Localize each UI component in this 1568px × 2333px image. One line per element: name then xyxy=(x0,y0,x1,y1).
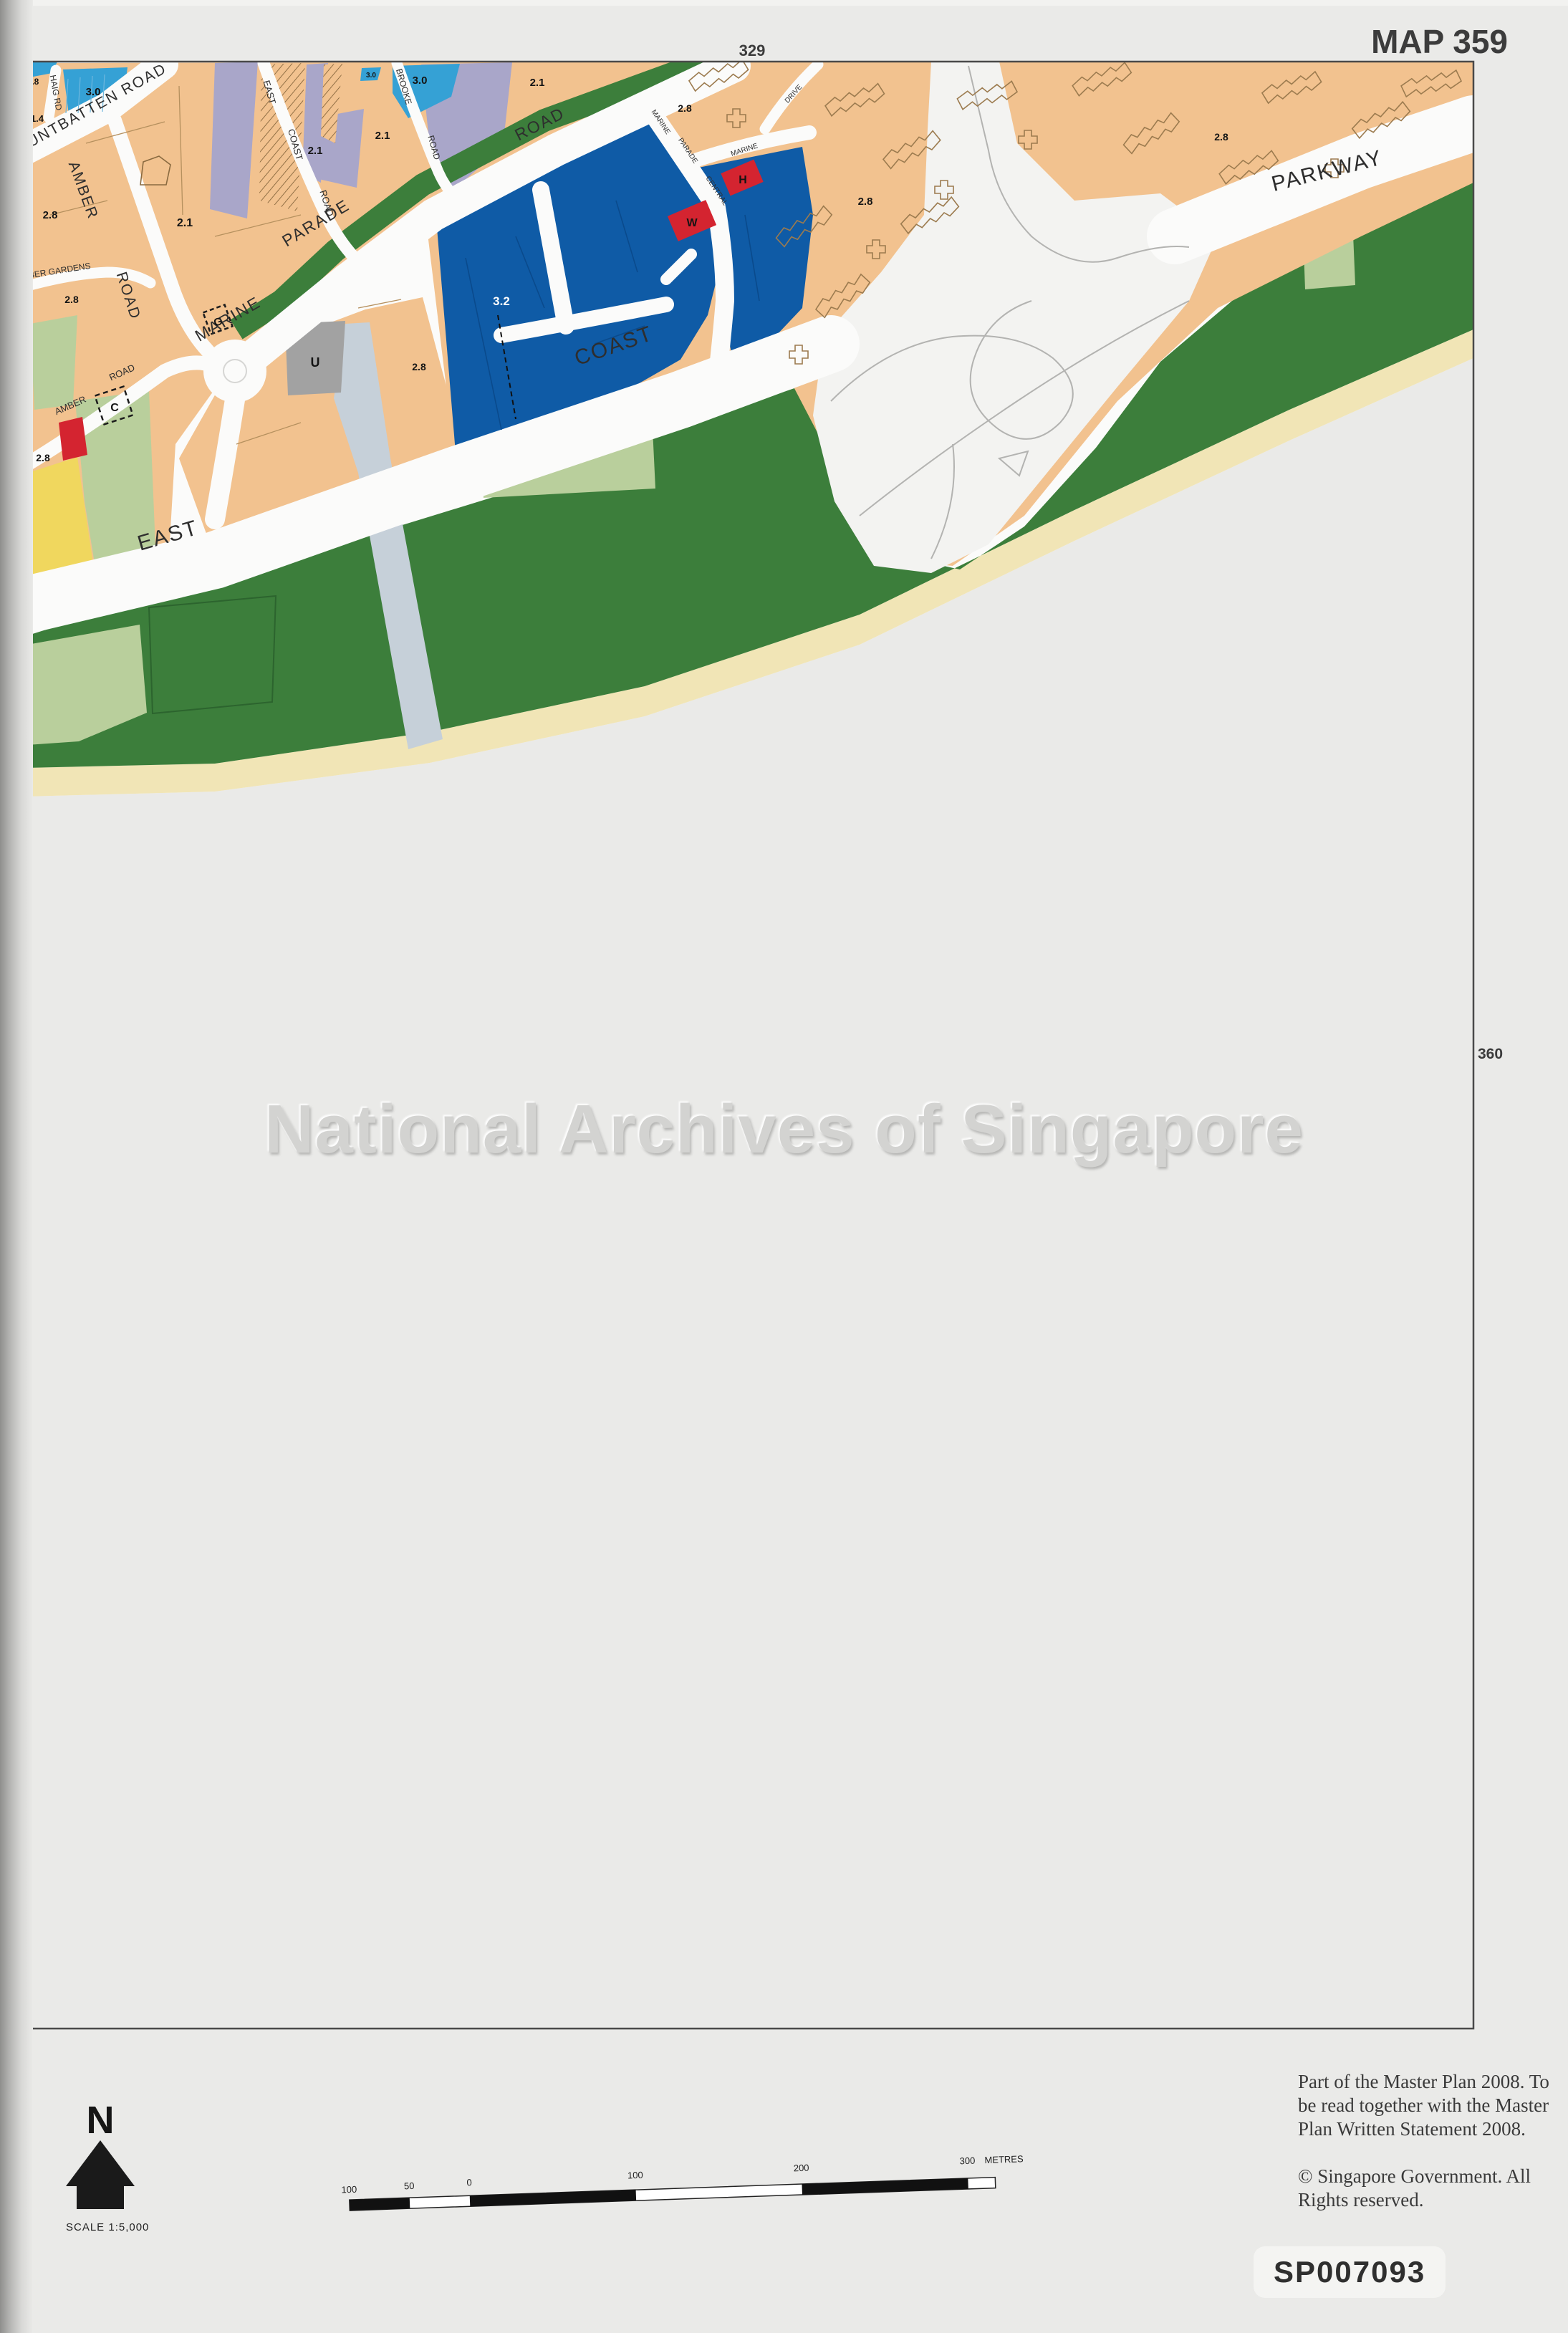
site-letter-w: W xyxy=(686,217,698,229)
ratio-21-main: 2.1 xyxy=(177,217,193,229)
scanned-map-page: MOUNTBATTEN ROAD HAIG RD AMBER ROAD AMBE… xyxy=(0,0,1568,2333)
map-title: MAP 359 xyxy=(1371,23,1508,60)
site-letter-u: U xyxy=(311,355,320,370)
ratio-32-blue: 3.2 xyxy=(493,294,510,308)
north-arrow-shape xyxy=(66,2140,135,2209)
scale-bar: 100 50 0 100 200 300 METRES xyxy=(341,2153,1024,2211)
ratio-21-ecr: 2.1 xyxy=(308,145,323,157)
ratio-30-brooke: 3.0 xyxy=(413,74,428,87)
site-letter-c: C xyxy=(110,402,119,414)
ratio-30-small: 3.0 xyxy=(366,72,376,80)
ratio-28-parkway: 2.8 xyxy=(1214,131,1228,143)
masterplan-footnote: Part of the Master Plan 2008. To be read… xyxy=(1298,2070,1550,2141)
adjacent-map-right: 360 xyxy=(1478,1046,1503,1062)
book-spine-shadow xyxy=(0,0,33,2333)
ratio-28-south: 2.8 xyxy=(36,452,50,463)
scale-tick-0: 0 xyxy=(466,2177,472,2188)
ratio-28-gardens: 2.8 xyxy=(64,294,79,305)
scale-units: METRES xyxy=(984,2153,1024,2165)
ratio-21-brooke: 2.1 xyxy=(530,77,545,89)
ratio-28-mp: 2.8 xyxy=(678,102,692,114)
scale-tick-300: 300 xyxy=(959,2155,975,2167)
archive-watermark: National Archives of Singapore xyxy=(0,1090,1568,1169)
ratio-30-left: 3.0 xyxy=(86,86,101,98)
copyright-note: © Singapore Government. All Rights reser… xyxy=(1298,2165,1550,2212)
scale-tick-100r: 100 xyxy=(627,2170,643,2181)
adjacent-map-top: 329 xyxy=(739,42,766,59)
map-content: MOUNTBATTEN ROAD HAIG RD AMBER ROAD AMBE… xyxy=(1,54,1473,797)
scale-tick-50: 50 xyxy=(404,2180,415,2191)
scale-tick-100l: 100 xyxy=(341,2184,357,2195)
ratio-28-canal: 2.8 xyxy=(412,361,426,372)
north-arrow: N SCALE 1:5,000 xyxy=(66,2099,149,2233)
north-label: N xyxy=(87,2099,115,2142)
ratio-21-mid: 2.1 xyxy=(375,130,390,142)
roundabout xyxy=(203,340,266,403)
site-letter-h: H xyxy=(739,174,747,186)
ratio-28-amber: 2.8 xyxy=(43,209,58,221)
reference-code-badge: SP007093 xyxy=(1254,2246,1446,2298)
ratio-28-drive: 2.8 xyxy=(858,196,873,208)
scale-tick-200: 200 xyxy=(794,2163,809,2174)
scale-text: SCALE 1:5,000 xyxy=(66,2221,149,2233)
